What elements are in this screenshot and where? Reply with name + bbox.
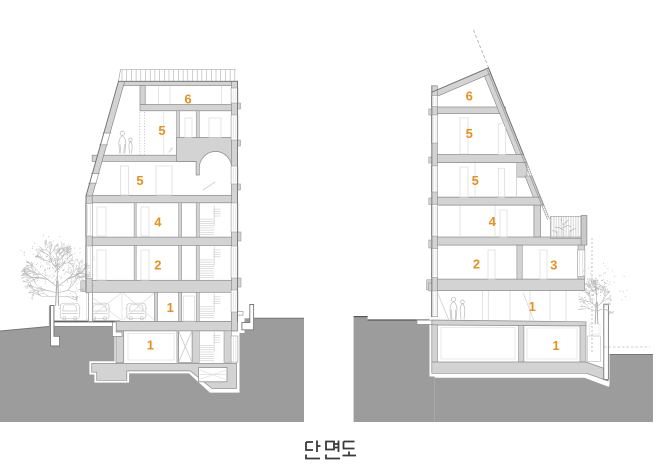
svg-text:1: 1 (552, 338, 559, 353)
svg-text:6: 6 (184, 92, 191, 107)
svg-text:4: 4 (154, 215, 162, 230)
svg-text:5: 5 (472, 173, 479, 188)
svg-text:1: 1 (147, 338, 154, 353)
svg-text:3: 3 (550, 257, 557, 272)
svg-text:2: 2 (154, 258, 161, 273)
svg-text:4: 4 (489, 214, 497, 229)
svg-text:5: 5 (466, 126, 473, 141)
svg-text:2: 2 (473, 257, 480, 272)
svg-text:5: 5 (136, 173, 143, 188)
svg-text:5: 5 (158, 123, 165, 138)
svg-text:6: 6 (466, 88, 473, 103)
svg-text:1: 1 (167, 300, 174, 315)
svg-text:1: 1 (529, 299, 536, 314)
